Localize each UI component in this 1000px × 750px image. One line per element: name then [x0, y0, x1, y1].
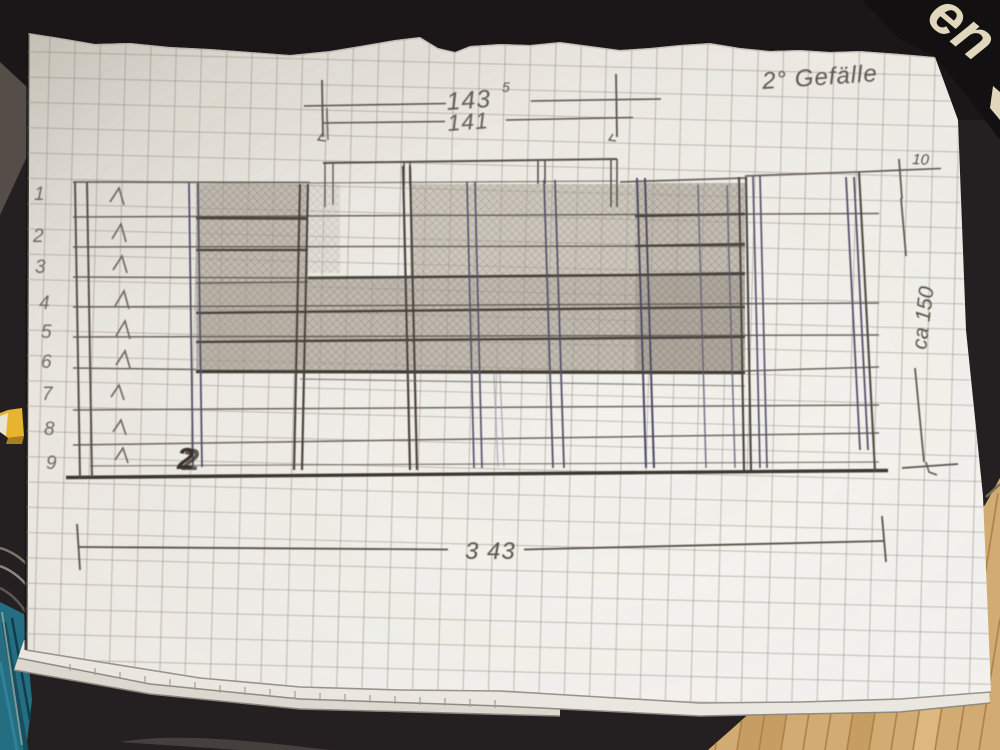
svg-text:7: 7: [42, 384, 54, 405]
svg-text:5: 5: [502, 79, 510, 95]
svg-text:4: 4: [39, 293, 50, 314]
svg-text:2: 2: [181, 442, 199, 477]
svg-text:1: 1: [34, 184, 45, 205]
svg-text:8: 8: [44, 419, 55, 440]
svg-text:3: 3: [35, 257, 46, 278]
svg-text:141: 141: [447, 107, 490, 136]
svg-text:3 43: 3 43: [465, 538, 516, 565]
svg-text:9: 9: [46, 453, 57, 474]
svg-text:6: 6: [41, 352, 52, 373]
svg-text:10: 10: [912, 151, 930, 169]
svg-text:2: 2: [32, 226, 44, 247]
svg-text:5: 5: [41, 322, 52, 343]
